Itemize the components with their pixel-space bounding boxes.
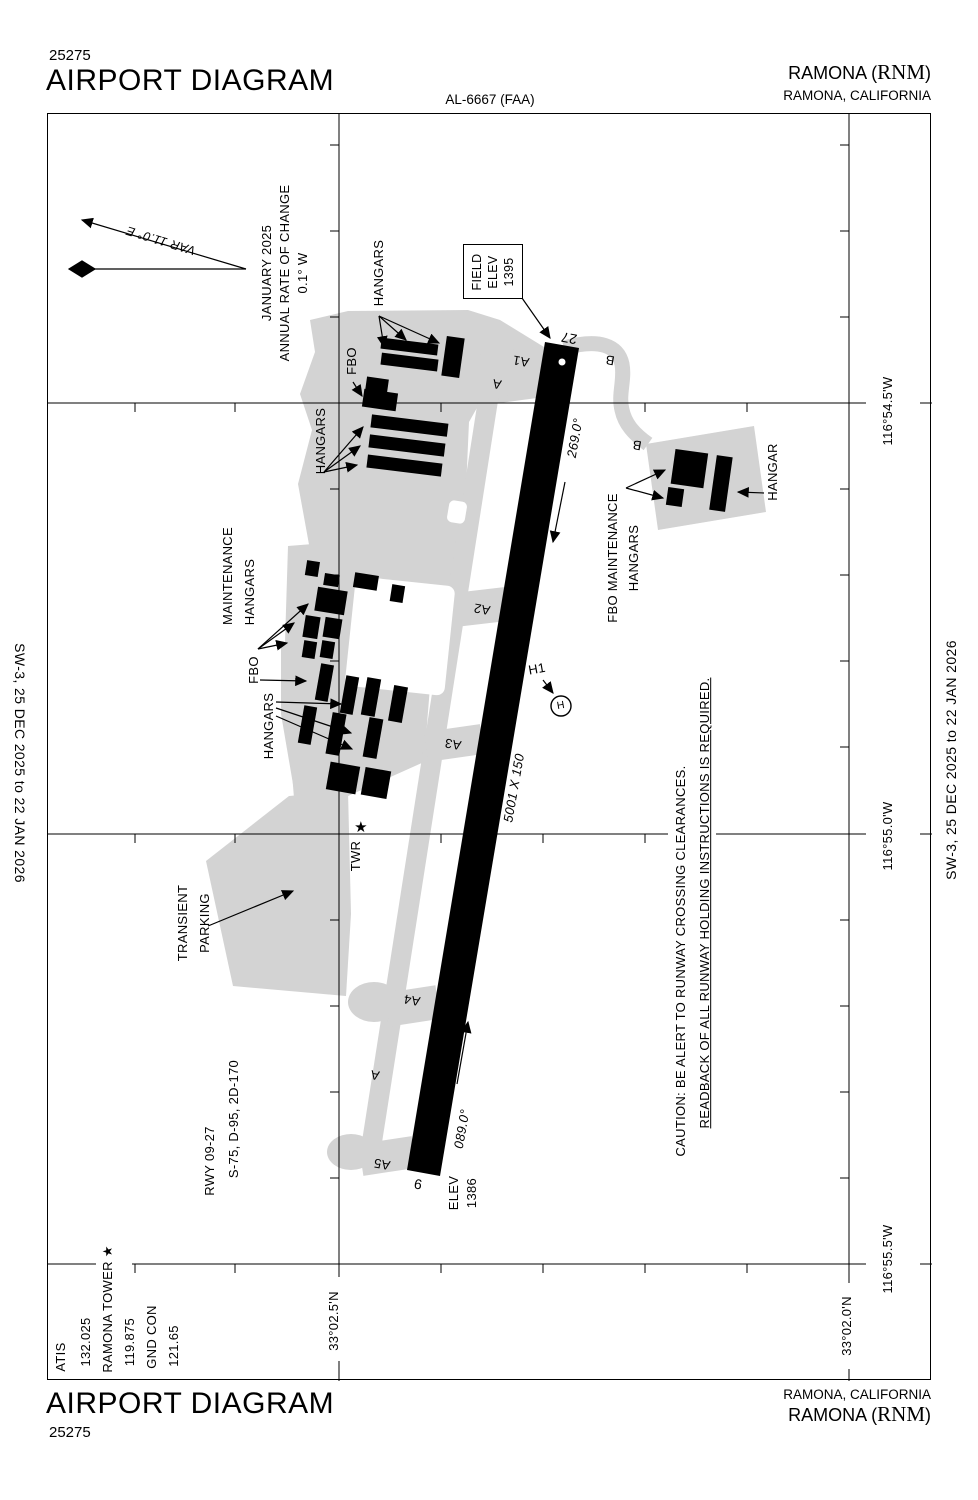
label-tower: TWR [349,841,363,872]
chart-number-bottom: 25275 [49,1424,91,1441]
taxiway-a5-label: A5 [373,1156,392,1172]
label-hangar-east: HANGAR [766,443,780,500]
ground-label: GND CON [145,1305,159,1369]
label-maintenance-2: HANGARS [243,559,257,625]
longitude-label-3: 116°55.5'W [881,1225,895,1294]
taxiway-a4-label: A4 [403,992,422,1008]
tower-label-text: RAMONA TOWER [100,1261,115,1372]
taxiway-a1 [483,368,545,376]
variation-line-3: 0.1° W [296,253,310,294]
tower-label: RAMONA TOWER ★ [101,1245,115,1372]
airport-prefix: RAMONA ( [788,63,877,83]
tower-star-glyph: ★ [100,1245,115,1257]
runway-info-line-2: S-75, D-95, 2D-170 [227,1060,241,1178]
longitude-label-2: 116°55.0'W [881,802,895,871]
airport-diagram-page: 25275 AIRPORT DIAGRAM AL-6667 (FAA) RAMO… [0,0,978,1500]
airport-code-bottom: RNM [877,1402,925,1426]
label-hangars-mid: HANGARS [314,408,328,474]
field-elev-box: FIELD ELEV 1395 [463,244,523,299]
label-fbo-maintenance-1: FBO MAINTENANCE [606,493,620,622]
transient-apron [206,791,351,996]
island-2 [446,500,467,525]
label-hangars-low: HANGARS [262,693,276,759]
airport-name-top: RAMONA (RNM) [788,60,931,85]
edition-label-right: SW-3, 25 DEC 2025 to 22 JAN 2026 [943,640,959,880]
taxiway-a1-label: A1 [512,353,531,369]
label-fbo-maintenance-2: HANGARS [627,525,641,591]
taxiway-a3-label: A3 [444,736,463,752]
page-title-top: AIRPORT DIAGRAM [46,64,334,98]
caution-line-2: READBACK OF ALL RUNWAY HOLDING INSTRUCTI… [698,678,712,1129]
airport-suffix: ) [925,63,931,83]
runway-threshold-dot [559,359,566,366]
airfield-svg [48,114,932,1381]
label-hangars-top: HANGARS [372,240,386,306]
runway-9-elev-value: 1386 [465,1178,479,1208]
airport-location-bottom: RAMONA, CALIFORNIA [783,1387,931,1402]
airport-prefix-bottom: RAMONA ( [788,1405,877,1425]
northeast-pad [646,426,766,530]
chart-number-top: 25275 [49,47,91,64]
atis-label: ATIS [54,1342,68,1371]
chart-id: AL-6667 (FAA) [445,92,534,107]
taxiway-a2-label: A2 [473,601,492,617]
runway-27-number: 27 [560,329,578,346]
runway-info-line-1: RWY 09-27 [203,1126,217,1195]
tower-star-icon: ★ [354,820,368,836]
airport-name-bottom: RAMONA (RNM) [788,1402,931,1427]
field-elev-line3: 1395 [501,244,517,300]
label-transient-2: PARKING [198,893,212,953]
label-fbo-top: FBO [345,347,359,375]
label-fbo-mid: FBO [247,656,261,684]
label-maintenance-1: MAINTENANCE [221,527,235,625]
variation-line-1: JANUARY 2025 [260,225,274,321]
ground-frequency: 121.65 [167,1325,181,1367]
a5-holding-pad [327,1134,375,1170]
label-helipad-h1: H1 [527,661,546,677]
runway-9-elev-label: ELEV [447,1176,461,1210]
label-transient-1: TRANSIENT [176,885,190,961]
a4-holding-pad [348,982,400,1022]
variation-line-2: ANNUAL RATE OF CHANGE [278,185,292,362]
latitude-label-2: 33°02.0'N [840,1296,854,1356]
airport-code: RNM [877,60,925,84]
airport-suffix-bottom: ) [925,1405,931,1425]
airport-location-top: RAMONA, CALIFORNIA [783,88,931,103]
field-elev-line2: ELEV [485,244,501,300]
longitude-label-1: 116°54.5'W [881,377,895,446]
caution-line-1: CAUTION: BE ALERT TO RUNWAY CROSSING CLE… [674,765,688,1156]
diagram-map-box: FIELD ELEV 1395 HANGARS FBO HANGARS MAIN… [47,113,931,1380]
atis-frequency: 132.025 [79,1317,93,1366]
tower-frequency: 119.875 [123,1318,137,1366]
field-elev-text: FIELD ELEV 1395 [469,244,517,300]
field-elev-line1: FIELD [469,244,485,300]
latitude-label-1: 33°02.5'N [327,1291,341,1351]
helipad-h-icon: H [556,700,566,712]
page-title-bottom: AIRPORT DIAGRAM [46,1387,334,1421]
edition-label-left: SW-3, 25 DEC 2025 to 22 JAN 2026 [12,643,28,883]
